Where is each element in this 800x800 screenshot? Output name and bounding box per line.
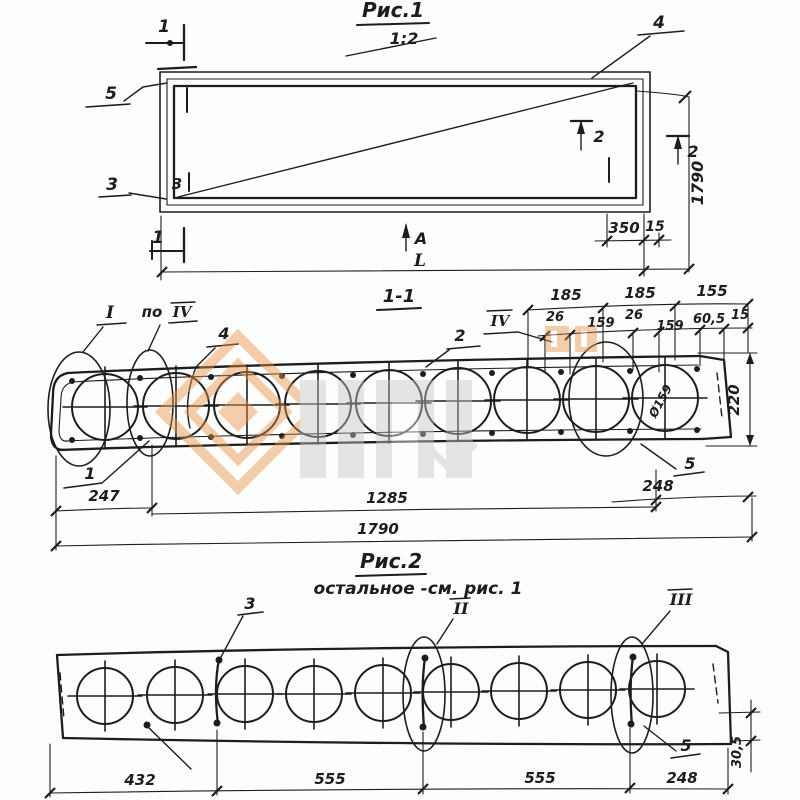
fig1-section-cut-1-top: 1 <box>146 17 184 60</box>
section-2-label: 2 <box>454 326 465 345</box>
fig1-section-cut-1-bottom: 1 <box>150 228 184 262</box>
fig1-title: Рис.1 <box>362 0 424 22</box>
fig1-dim-1790: 1790 <box>636 91 707 272</box>
dim-155: 155 <box>696 282 727 300</box>
fig1-section-cut-2-outer: 2 <box>667 135 699 164</box>
fig1-dim-350-15: 350 15 <box>595 214 671 276</box>
fig1-view-arrow-a: A <box>402 223 427 251</box>
fig2-callout-5: 5 <box>644 726 700 758</box>
dim-248-label: 248 <box>642 477 673 495</box>
fig2-title: Рис.2 <box>360 549 422 573</box>
dim-247-label: 247 <box>88 487 120 505</box>
fig2-note: остальное -см. рис. 1 <box>314 579 523 599</box>
dim-432-label: 432 <box>123 771 155 789</box>
fig1-callout-3: 3 <box>99 175 166 199</box>
dim-220-label: 220 <box>725 384 743 415</box>
fig2-plan-view: Рис.2 остальное -см. рис. 1 <box>45 549 760 798</box>
dim-26b: 26 <box>625 308 643 323</box>
fig2-II-label: II <box>453 599 469 618</box>
dim-1790-label: 1790 <box>688 161 707 206</box>
dim-15-label: 15 <box>645 219 665 235</box>
cut-2-inner-label: 2 <box>593 127 604 146</box>
po-label: по <box>142 303 163 321</box>
section-dim-248: 248 <box>612 477 756 541</box>
section-title: 1-1 <box>383 286 416 307</box>
dim-185b: 185 <box>624 284 655 302</box>
blueprint-page: Рис.1 1:2 1 1 5 <box>0 0 800 800</box>
dim-605: 60,5 <box>693 312 725 327</box>
dim-length-label: L <box>413 251 426 271</box>
mark-IV-label: IV <box>490 312 511 330</box>
section-dims-row2: 26 159 26 159 60,5 15 <box>538 308 753 374</box>
dim-248b-label: 248 <box>666 769 697 787</box>
fig2-5-label: 5 <box>680 736 691 755</box>
dim-305-label: 30,5 <box>730 736 745 768</box>
dim-555b-label: 555 <box>524 769 555 787</box>
fig1-section-cut-2-inner: 2 <box>571 120 605 150</box>
callout-5-label: 5 <box>105 84 117 104</box>
fig2-detail-III: III <box>642 589 693 644</box>
section-mark-IV: IV <box>484 310 552 342</box>
dim-26a: 26 <box>546 310 564 325</box>
fig2-detail-II: II <box>437 598 470 644</box>
fig2-3-label: 3 <box>244 594 255 613</box>
dim-1790-total-label: 1790 <box>357 520 399 538</box>
fig2-dims-bottom: 432 555 555 248 <box>45 728 733 798</box>
fig2-callout-3: 3 <box>221 594 263 657</box>
fig2-III-label: III <box>669 590 693 609</box>
inner-3-label: 3 <box>172 175 182 193</box>
view-arrow-label: A <box>413 229 427 248</box>
section-1-label: 1 <box>84 464 95 483</box>
callout-3-label: 3 <box>106 175 118 195</box>
detail-I-label: I <box>105 303 115 323</box>
fig1-inner-mark-3: 3 <box>172 173 189 193</box>
dim-159b: 159 <box>656 319 683 334</box>
watermark-logo <box>162 326 597 488</box>
section-po-IV: по IV <box>142 302 197 351</box>
section-callout-5: 5 <box>641 444 704 476</box>
fig2-cores <box>68 654 694 731</box>
dim-555a-label: 555 <box>314 770 345 788</box>
fig1-scale: 1:2 <box>390 29 419 48</box>
dim-1285-label: 1285 <box>366 489 408 507</box>
section-dim-220: 220 <box>698 353 757 446</box>
section-5-label: 5 <box>684 454 695 473</box>
dim-185a: 185 <box>550 286 581 304</box>
cut-1-top-label: 1 <box>158 17 170 37</box>
fig1-callout-4: 4 <box>592 13 684 78</box>
dim-350-label: 350 <box>608 219 639 237</box>
fig2-dim-305: 30,5 <box>719 700 760 772</box>
section-detail-mark-I: I <box>83 303 126 352</box>
fig2-bar-III <box>611 637 653 753</box>
cut-1-bottom-label: 1 <box>152 228 164 248</box>
drawing-canvas: Рис.1 1:2 1 1 5 <box>0 0 800 800</box>
dim-15b: 15 <box>731 308 749 323</box>
fig1-plan-view: Рис.1 1:2 1 1 5 <box>86 0 707 280</box>
po-ref-label: IV <box>172 303 193 321</box>
callout-4-label: 4 <box>652 13 665 33</box>
core-diameter-label: Ø159 <box>646 382 675 421</box>
